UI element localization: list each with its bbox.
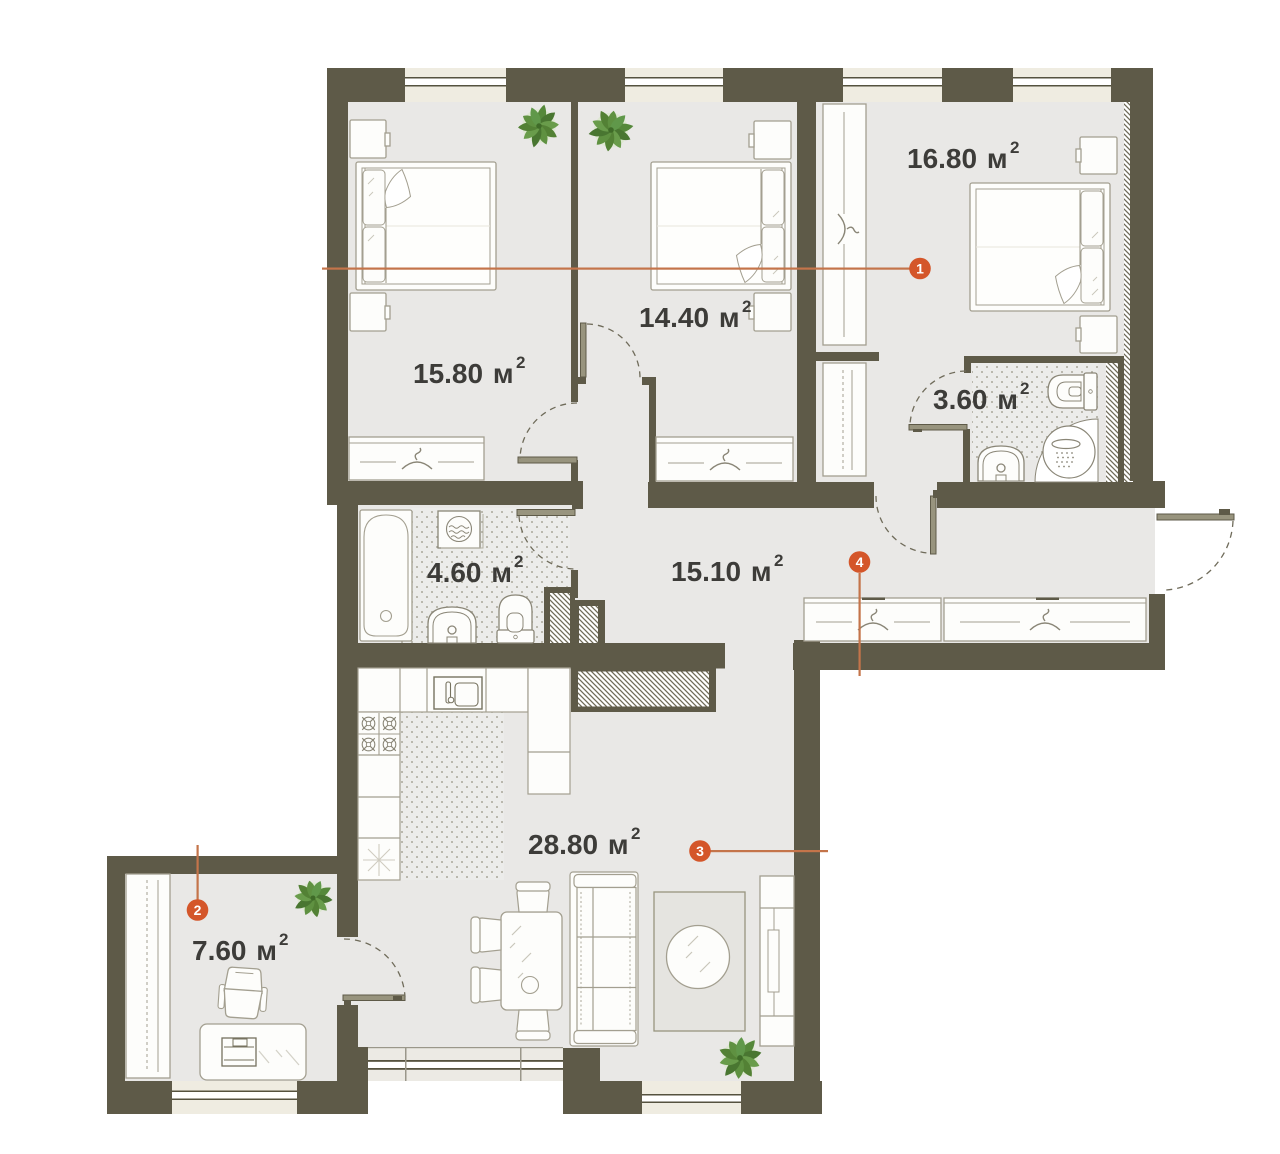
- svg-text:2: 2: [774, 551, 783, 570]
- svg-text:2: 2: [631, 824, 640, 843]
- svg-text:2: 2: [1010, 138, 1019, 157]
- svg-text:14.40 м: 14.40 м: [639, 302, 740, 333]
- svg-text:2: 2: [194, 902, 202, 918]
- svg-text:16.80 м: 16.80 м: [907, 143, 1008, 174]
- svg-text:15.80 м: 15.80 м: [413, 358, 514, 389]
- svg-text:3.60 м: 3.60 м: [933, 384, 1018, 415]
- svg-text:1: 1: [916, 261, 924, 277]
- svg-text:2: 2: [516, 353, 525, 372]
- svg-text:4: 4: [856, 554, 864, 570]
- svg-text:2: 2: [742, 297, 751, 316]
- svg-text:3: 3: [696, 843, 704, 859]
- svg-text:2: 2: [279, 930, 288, 949]
- svg-text:4.60 м: 4.60 м: [427, 557, 512, 588]
- svg-text:2: 2: [1020, 379, 1029, 398]
- svg-text:2: 2: [514, 552, 523, 571]
- svg-text:15.10 м: 15.10 м: [671, 556, 772, 587]
- svg-text:28.80 м: 28.80 м: [528, 829, 629, 860]
- svg-text:7.60 м: 7.60 м: [192, 935, 277, 966]
